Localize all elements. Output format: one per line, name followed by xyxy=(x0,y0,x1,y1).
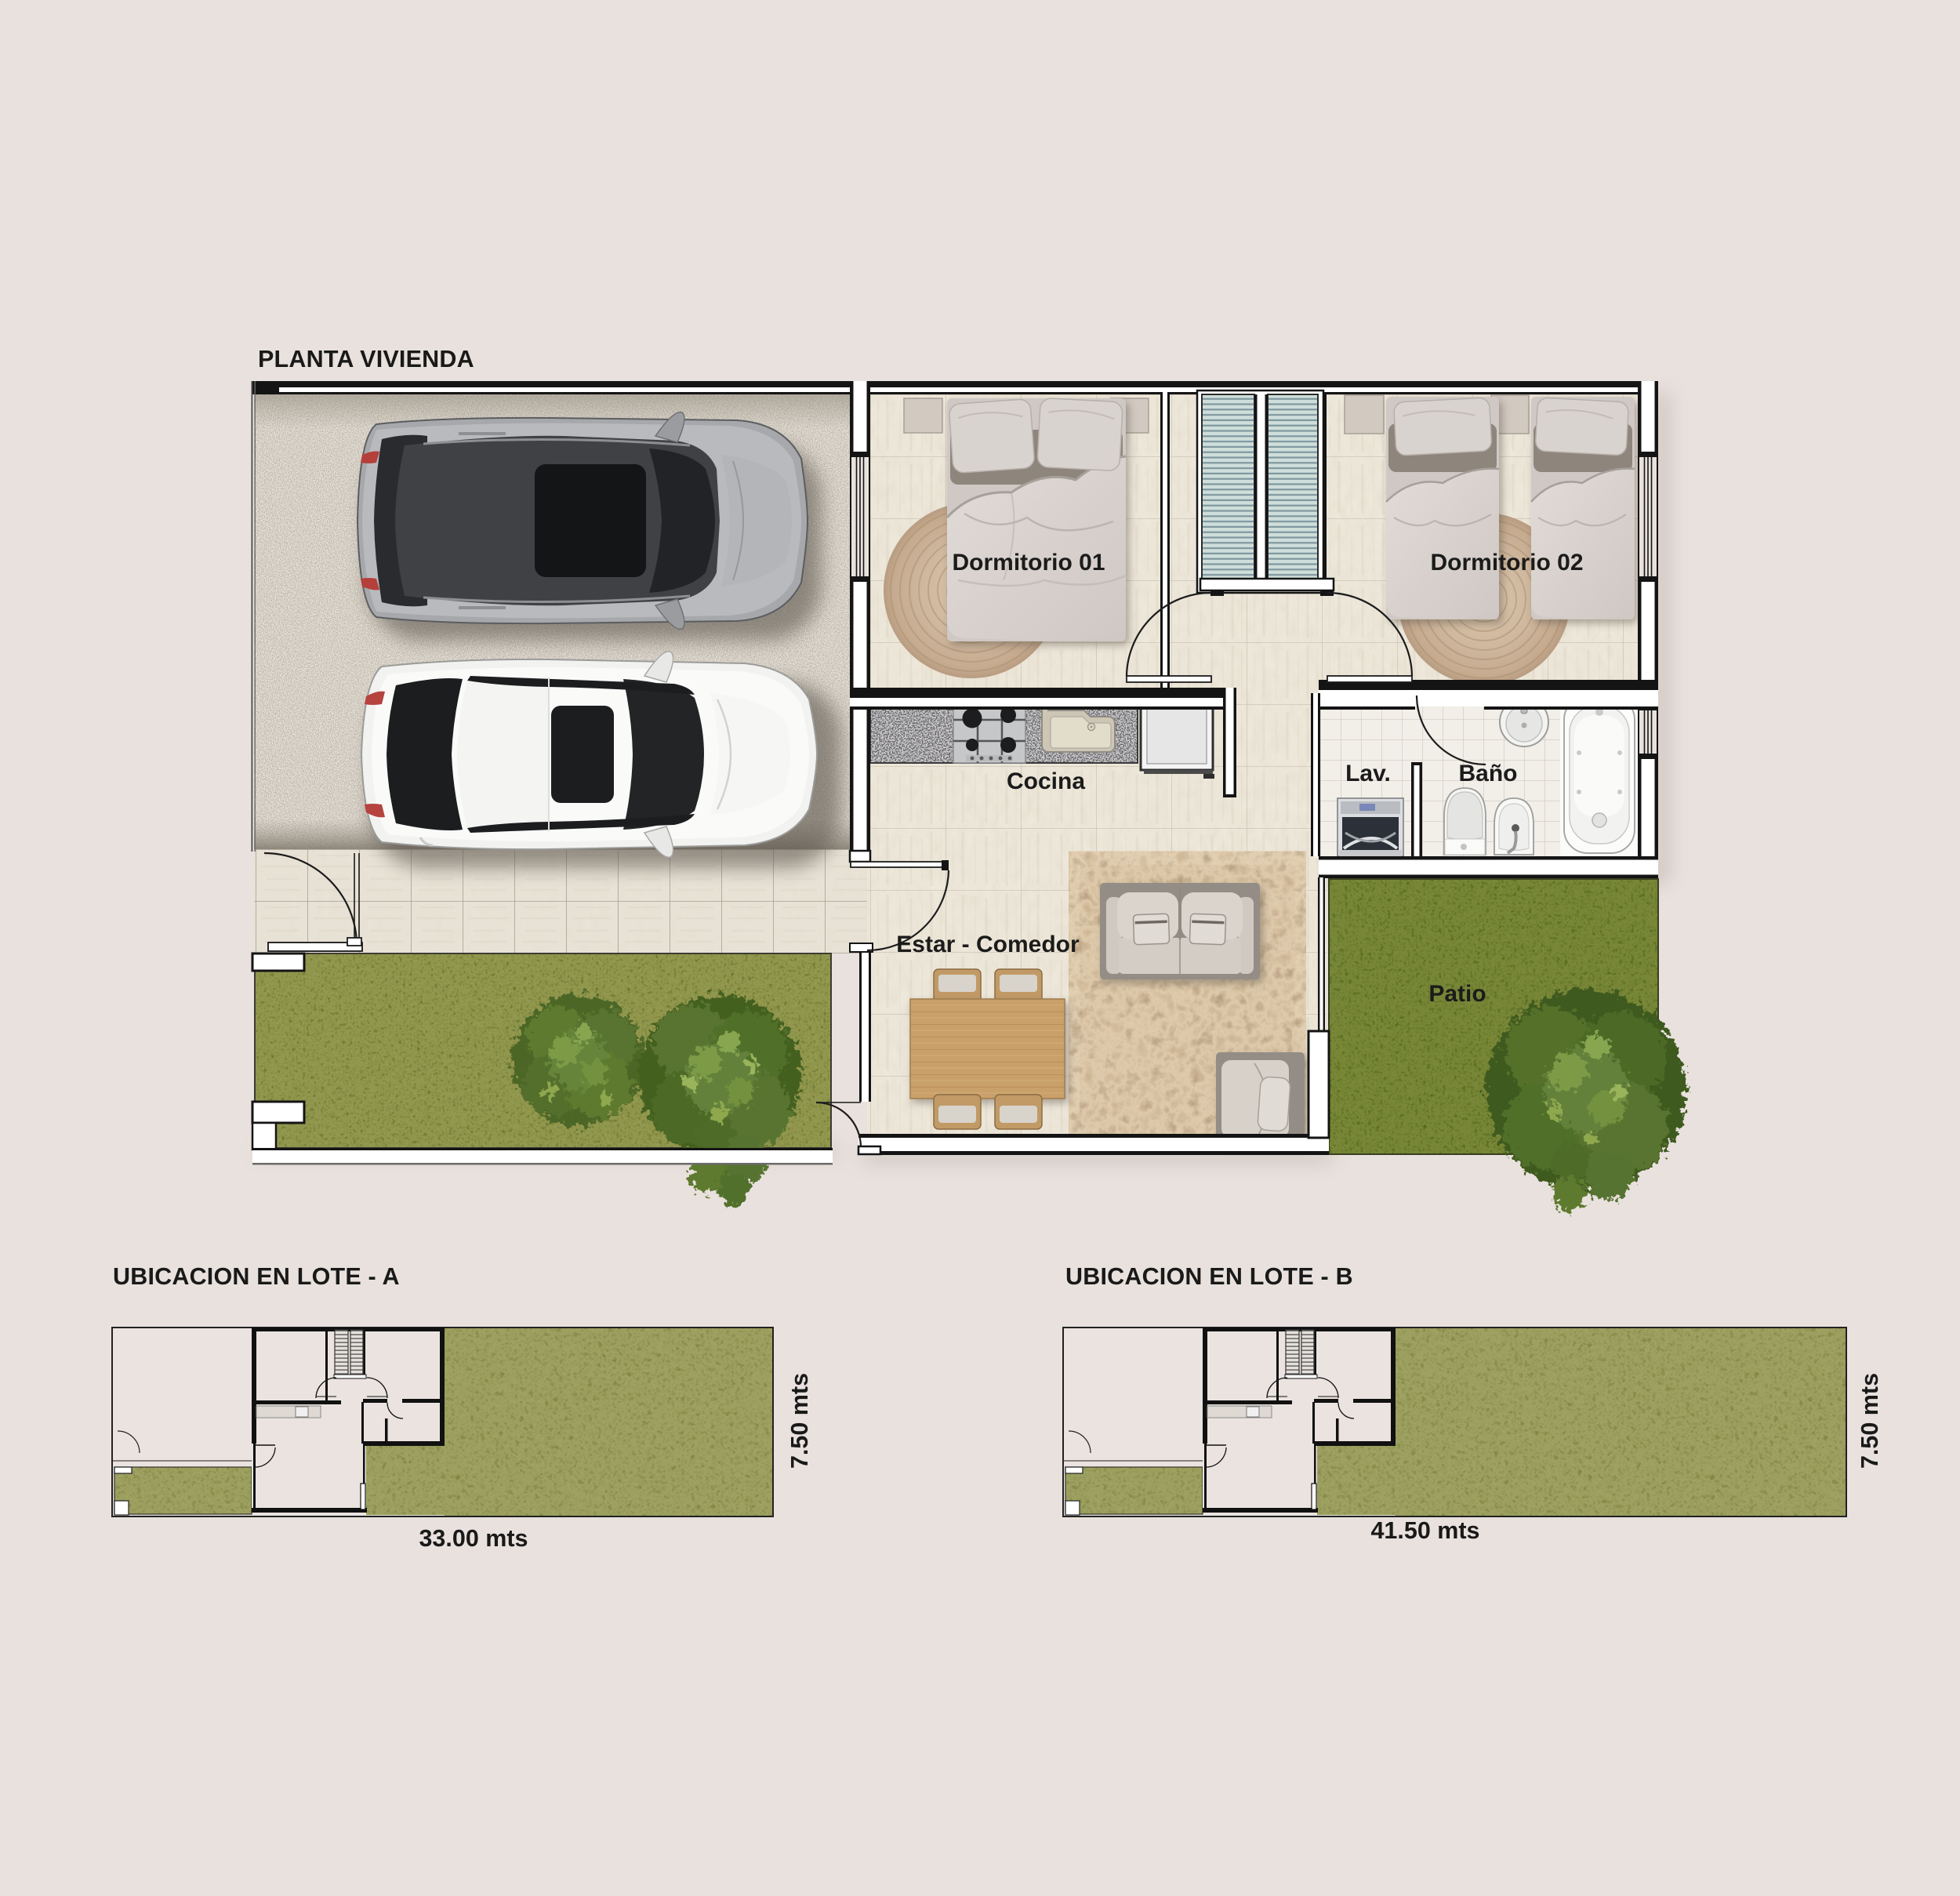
svg-text:Lav.: Lav. xyxy=(1345,761,1391,786)
svg-text:Estar - Comedor: Estar - Comedor xyxy=(896,932,1080,957)
svg-text:Baño: Baño xyxy=(1459,761,1518,786)
svg-text:Dormitorio 02: Dormitorio 02 xyxy=(1430,550,1583,576)
svg-text:Patio: Patio xyxy=(1428,981,1486,1007)
svg-text:UBICACION EN LOTE - B: UBICACION EN LOTE - B xyxy=(1065,1263,1353,1290)
svg-text:33.00 mts: 33.00 mts xyxy=(419,1525,528,1552)
svg-text:41.50 mts: 41.50 mts xyxy=(1370,1517,1479,1544)
svg-text:PLANTA VIVIENDA: PLANTA VIVIENDA xyxy=(258,346,474,372)
svg-text:7.50 mts: 7.50 mts xyxy=(1857,1373,1883,1469)
svg-text:Cocina: Cocina xyxy=(1007,768,1085,794)
svg-text:UBICACION EN LOTE - A: UBICACION EN LOTE - A xyxy=(113,1263,400,1290)
svg-text:Dormitorio 01: Dormitorio 01 xyxy=(952,550,1105,576)
svg-text:7.50 mts: 7.50 mts xyxy=(786,1373,813,1469)
